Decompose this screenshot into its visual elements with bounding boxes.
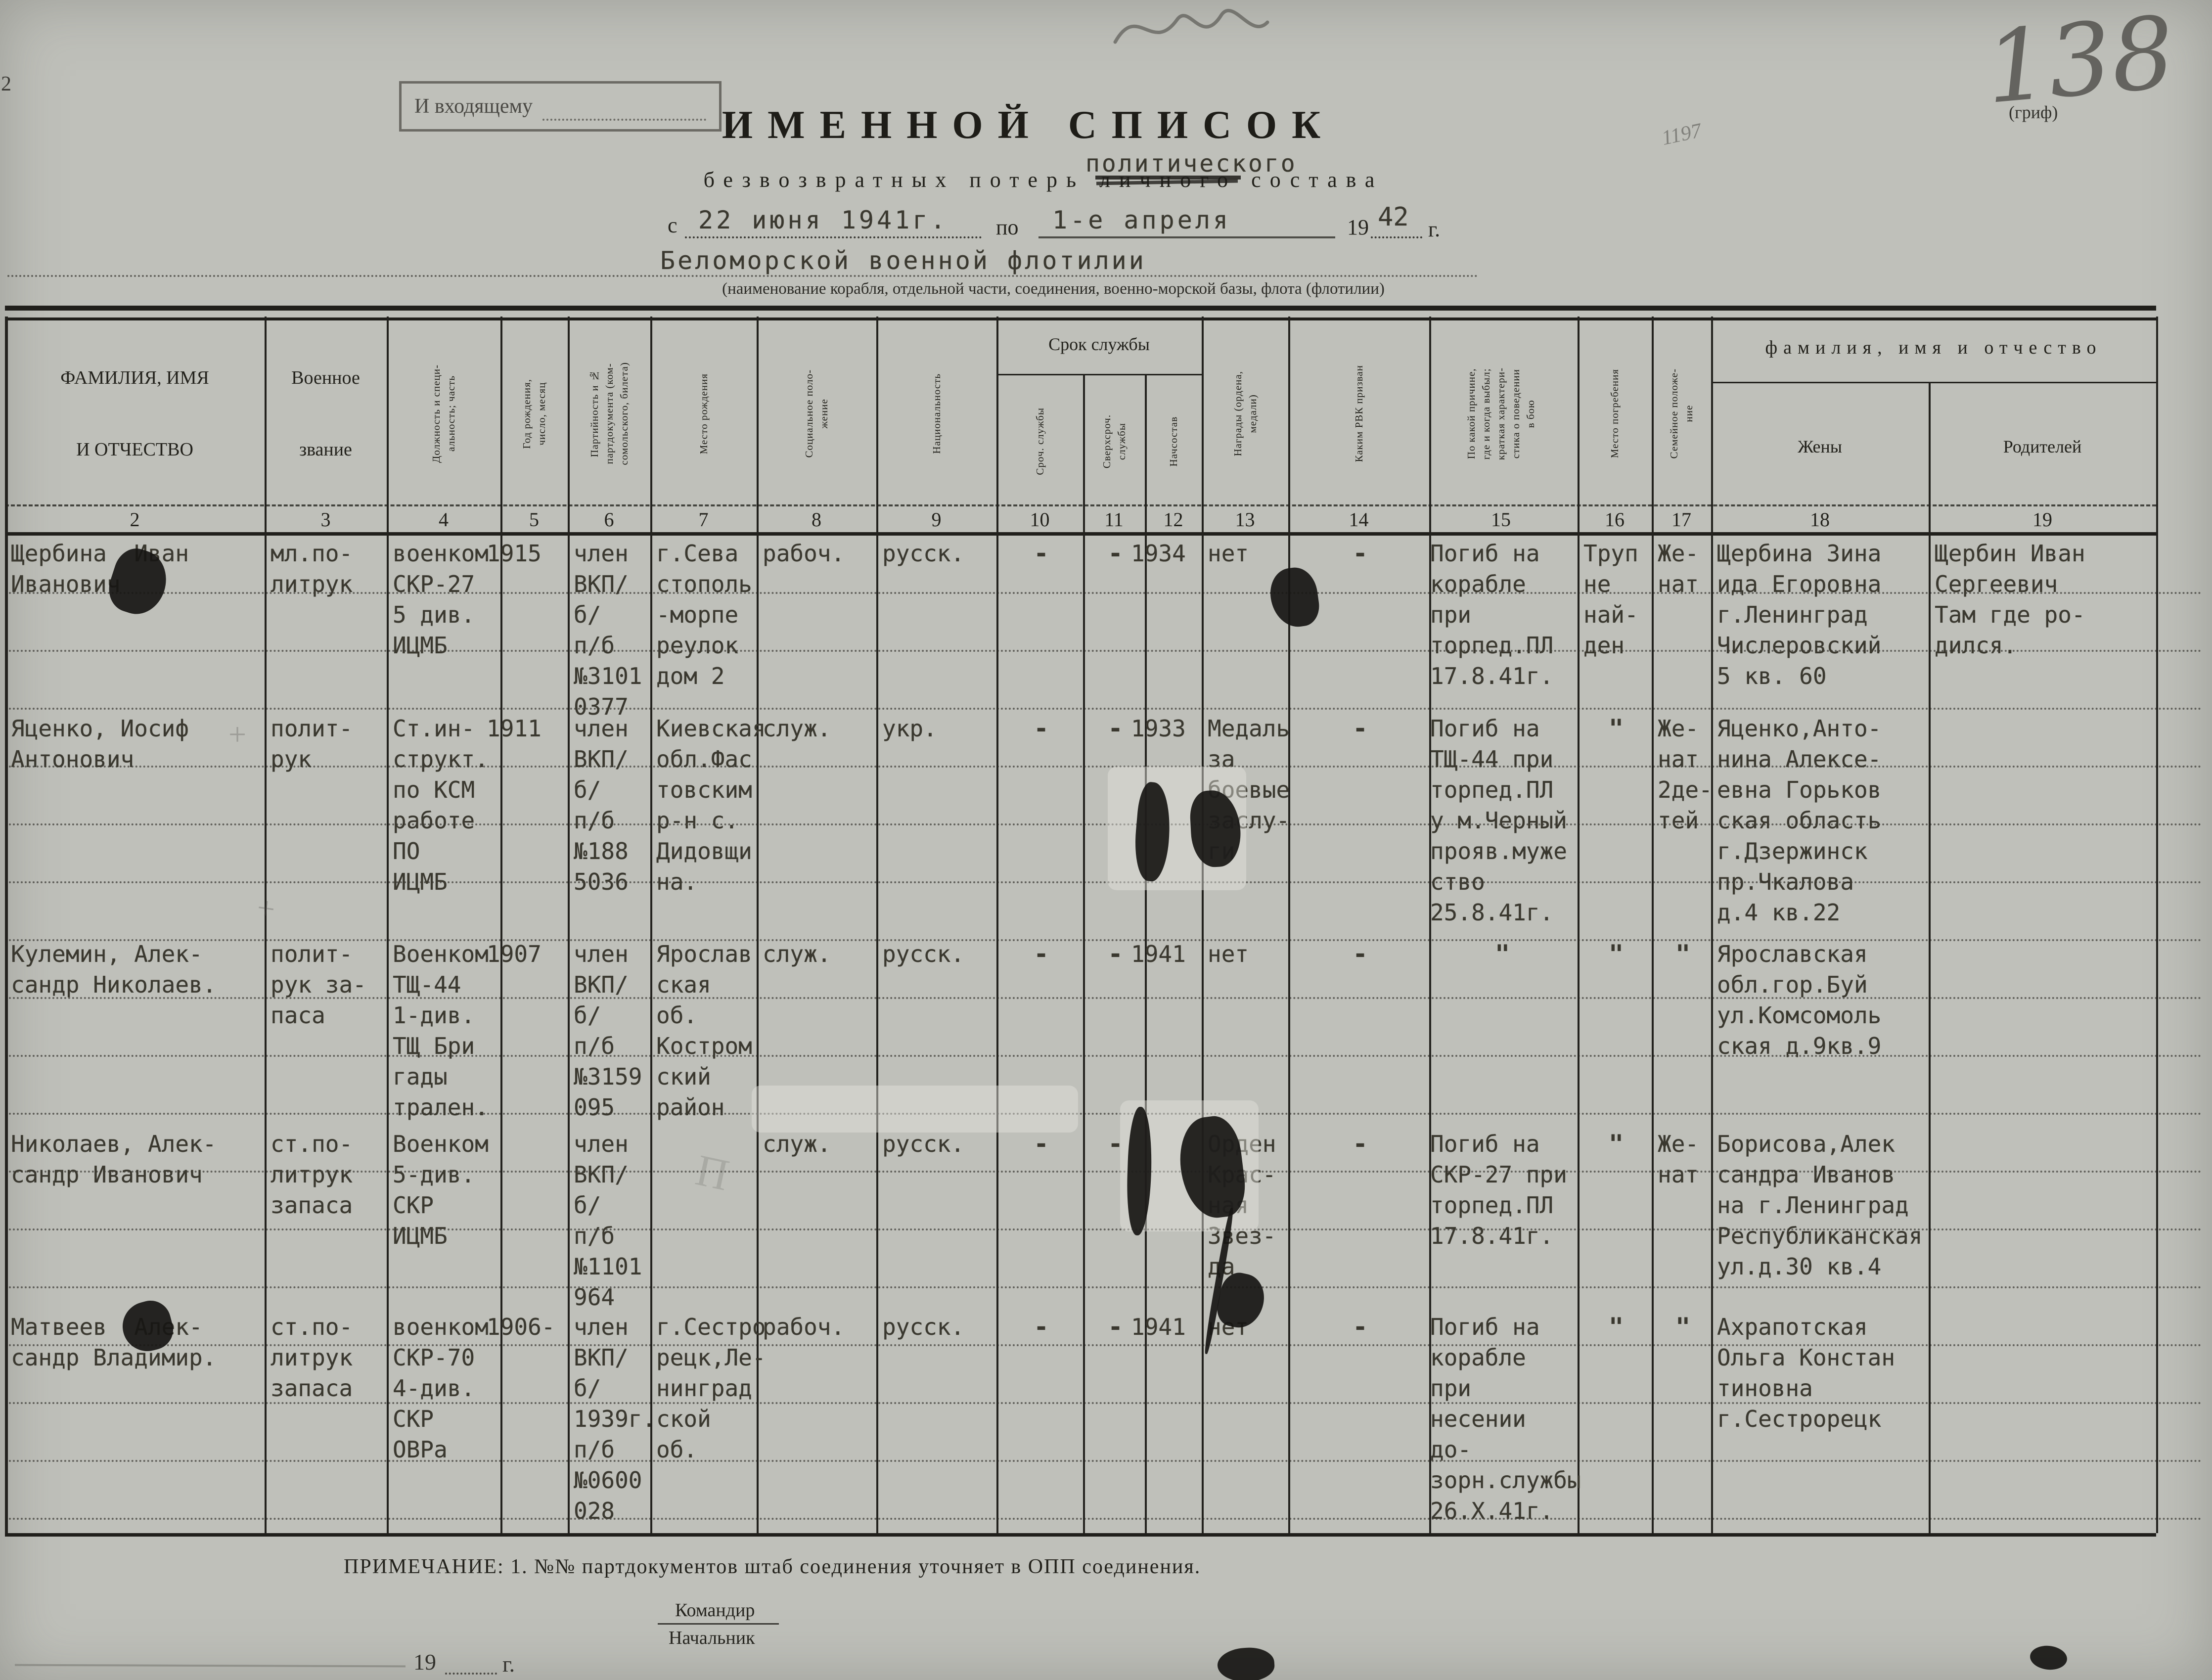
cell-r5-c18: Ахрапотская Ольга Констан тиновна г.Сест… [1717, 1312, 1926, 1434]
cell-r3-c10: - [1002, 939, 1080, 969]
column-number-16: 16 [1578, 506, 1652, 532]
pencil-mark: + [228, 716, 246, 753]
cell-r2-c5: 1911 [487, 713, 564, 744]
column-number-5: 5 [500, 506, 568, 532]
cell-r2-c3: полит- рук [271, 713, 384, 774]
cell-r3-c7: Ярослав ская об. Костром ский район [656, 939, 754, 1123]
cell-r1-c10: - [1002, 538, 1080, 569]
cell-r3-c12: 1941 [1131, 939, 1198, 969]
grid-line [1929, 382, 1931, 1533]
ruling-line [5, 1286, 2203, 1288]
cell-r2-c12: 1933 [1131, 713, 1198, 744]
cell-r5-c3: ст.по- литрук запаса [271, 1312, 384, 1404]
cell-r5-c14: - [1294, 1312, 1426, 1342]
column-header-17: Семейное положе- ние [1652, 325, 1711, 502]
column-header-label: Должность и специ- альность; часть [429, 364, 458, 463]
table-top-border [5, 306, 2156, 311]
cell-r2-c10: - [1002, 713, 1080, 744]
column-number-3: 3 [265, 506, 387, 532]
column-number-2: 2 [5, 506, 265, 532]
paper-patch [752, 1086, 1078, 1133]
group-header-family: фамилия, имя и отчество [1711, 331, 2156, 364]
column-header-2: ФАМИЛИЯ, ИМЯ И ОТЧЕСТВО [5, 325, 265, 502]
column-number-10: 10 [996, 506, 1083, 532]
ink-blot [1217, 1646, 1275, 1680]
ruling-line [5, 1113, 2203, 1115]
cell-r3-c14: - [1294, 939, 1426, 969]
column-header-label: Сверхсроч. службы [1099, 414, 1129, 468]
column-number-12: 12 [1145, 506, 1202, 532]
column-number-14: 14 [1288, 506, 1429, 532]
column-number-4: 4 [387, 506, 500, 532]
cell-r1-c5: 1915 [487, 538, 564, 569]
column-header-4: Должность и специ- альность; часть [387, 325, 500, 502]
cell-r1-c19: Щербин Иван Сергеевич Там где ро- дился. [1935, 538, 2153, 661]
cell-r3-c4: Военком ТЩ-44 1-див. ТЩ Бри гады трален. [393, 939, 497, 1123]
cell-r5-c17: " [1658, 1312, 1708, 1342]
cell-r3-c3: полит- рук за- паса [271, 939, 384, 1031]
table-bottom-border [5, 1533, 2156, 1537]
cell-r5-c8: рабоч. [763, 1312, 873, 1342]
pencil-mark: + [255, 889, 277, 928]
cell-r1-c18: Щербина Зина ида Егоровна г.Ленинград Чи… [1717, 538, 1926, 691]
cell-r1-c14: - [1294, 538, 1426, 569]
column-number-11: 11 [1083, 506, 1145, 532]
column-header-9: Национальность [876, 325, 996, 502]
cell-r1-c4: военком СКР-27 5 див. ИЦМБ [393, 538, 497, 661]
pencil-mark: П [691, 1144, 733, 1201]
cell-r1-c12: 1934 [1131, 538, 1198, 569]
cell-r5-c15: Погиб на корабле при несении до- зорн.сл… [1430, 1312, 1575, 1526]
grid-line [1083, 374, 1085, 1533]
cell-r1-c15: Погиб на корабле при торпед.ПЛ 17.8.41г. [1430, 538, 1575, 691]
document-page: 2 И входящему 138 (гриф) 1197 ИМЕННОЙ СП… [0, 0, 2212, 1680]
column-number-19: 19 [1929, 506, 2156, 532]
column-header-7: Место рождения [650, 325, 757, 502]
cell-r4-c6: член ВКП/б/ п/б №1101 964 [574, 1129, 647, 1313]
cell-r2-c18: Яценко,Анто- нина Алексе- евна Горьков с… [1717, 713, 1926, 928]
cell-r3-c18: Ярославская обл.гор.Буй ул.Комсомоль ска… [1717, 939, 1926, 1061]
cell-r3-c13: нет [1208, 939, 1285, 969]
ink-blot [1267, 565, 1322, 630]
footer-year-rule [445, 1673, 497, 1675]
cell-r3-c6: член ВКП/б/ п/б №3159 095 [574, 939, 647, 1123]
cell-r4-c17: Же- нат [1658, 1129, 1708, 1190]
column-header-label: Награды (ордена, медали) [1230, 371, 1260, 456]
cell-r4-c14: - [1294, 1129, 1426, 1159]
column-header-14: Каким РВК призван [1288, 325, 1429, 502]
cell-r1-c8: рабоч. [763, 538, 873, 569]
cell-r2-c16: " [1583, 713, 1649, 744]
column-header-label: Каким РВК призван [1352, 365, 1366, 462]
cell-r5-c12: 1941 [1131, 1312, 1198, 1342]
cell-r5-c9: русск. [882, 1312, 993, 1342]
cell-r1-c3: мл.по- литрук [271, 538, 384, 599]
footer-year-prefix: 19 [413, 1649, 436, 1675]
cell-r2-c14: - [1294, 713, 1426, 744]
column-number-7: 7 [650, 506, 757, 532]
column-number-9: 9 [876, 506, 996, 532]
cell-r3-c16: " [1583, 939, 1649, 969]
cell-r5-c6: член ВКП/б/ 1939г. п/б №0600 028 [574, 1312, 647, 1526]
cell-r4-c18: Борисова,Алек сандра Иванов на г.Ленингр… [1717, 1129, 1926, 1282]
ruling-line [5, 708, 2203, 710]
column-header-13: Награды (ордена, медали) [1202, 325, 1288, 502]
cell-r4-c8: служ. [763, 1129, 873, 1159]
column-number-6: 6 [568, 506, 650, 532]
column-number-15: 15 [1424, 506, 1578, 532]
column-header-19: Родителей [1929, 391, 2156, 502]
signature-rule [658, 1623, 779, 1625]
cell-r4-c9: русск. [882, 1129, 993, 1159]
column-number-13: 13 [1202, 506, 1288, 532]
losses-table: Срок службыфамилия, имя и отчествоФАМИЛИ… [0, 0, 2212, 1680]
cell-r4-c4: Военком 5-див. СКР ИЦМБ [393, 1129, 497, 1251]
cell-r4-c10: - [1002, 1129, 1080, 1159]
column-header-12: Начсостав [1145, 381, 1202, 502]
cell-r1-c13: нет [1208, 538, 1285, 569]
ink-blot [2029, 1644, 2069, 1672]
cell-r4-c3: ст.по- литрук запаса [271, 1129, 384, 1221]
column-header-16: Место погребения [1578, 325, 1652, 502]
ruling-line [5, 1460, 2203, 1462]
header-bottom-border [5, 532, 2156, 536]
column-header-18: Жены [1711, 391, 1929, 502]
signature-role-chief: Начальник [669, 1627, 755, 1649]
cell-r2-c6: член ВКП/б/ п/б №188 5036 [574, 713, 647, 897]
cell-r2-c15: Погиб на ТЩ-44 при торпед.ПЛ у м.Черный … [1430, 713, 1575, 928]
cell-r5-c10: - [1002, 1312, 1080, 1342]
column-header-15: По какой причине, где и когда выбыл; кра… [1424, 325, 1578, 502]
cell-r2-c9: укр. [882, 713, 993, 744]
cell-r2-c8: служ. [763, 713, 873, 744]
column-number-8: 8 [757, 506, 876, 532]
column-header-label: Партийность и № партдокумента (ком- сомо… [587, 362, 632, 465]
cell-r3-c15: " [1430, 939, 1575, 969]
cell-r3-c9: русск. [882, 939, 993, 969]
column-header-10: Сроч. службы [996, 381, 1083, 502]
column-header-label: Место погребения [1607, 369, 1622, 458]
column-header-label: Сроч. службы [1033, 408, 1047, 475]
cell-r2-c4: Ст.ин- структ. по КСМ работе ПО ИЦМБ [393, 713, 497, 897]
cell-r5-c4: военком СКР-70 4-див. СКР ОВРа [393, 1312, 497, 1465]
column-header-8: Социальное поло- жение [757, 325, 876, 502]
cell-r5-c7: г.Сестро рецк,Ле- нинград ской об. [656, 1312, 754, 1465]
cell-r5-c16: " [1583, 1312, 1649, 1342]
column-header-3: Военное звание [265, 325, 387, 502]
column-header-label: Год рождения, число, месяц [519, 379, 549, 449]
cell-r4-c2: Николаев, Алек- сандр Иванович [11, 1129, 262, 1190]
column-header-label: Семейное положе- ние [1667, 368, 1696, 458]
footnote: ПРИМЕЧАНИЕ: 1. №№ партдокументов штаб со… [344, 1555, 1201, 1579]
column-number-18: 18 [1711, 506, 1929, 532]
column-header-11: Сверхсроч. службы [1083, 381, 1145, 502]
column-header-label: Место рождения [696, 373, 711, 454]
cell-r2-c7: Киевская обл.Фас товским р-н с. Дидовщи … [656, 713, 754, 897]
table-top-border-inner [5, 318, 2156, 320]
cell-r3-c8: служ. [763, 939, 873, 969]
cell-r1-c7: г.Сева стополь -морпе реулок дом 2 [656, 538, 754, 691]
cell-r1-c9: русск. [882, 538, 993, 569]
cell-r2-c17: Же- нат 2де- тей [1658, 713, 1708, 836]
group-header-service: Срок службы [996, 328, 1202, 360]
column-header-label: Национальность [929, 373, 944, 454]
column-header-label: Начсостав [1166, 416, 1181, 467]
cell-r4-c16: " [1583, 1129, 1649, 1159]
cell-r2-c2: Яценко, Иосиф Антонович [11, 713, 262, 774]
column-header-label: Социальное поло- жение [802, 369, 831, 458]
cell-r5-c5: 1906- [487, 1312, 564, 1342]
column-header-label: По какой причине, где и когда выбыл; кра… [1464, 367, 1538, 460]
column-header-5: Год рождения, число, месяц [500, 325, 568, 502]
cell-r1-c17: Же- нат [1658, 538, 1708, 599]
cell-r3-c2: Кулемин, Алек- сандр Николаев. [11, 939, 262, 1000]
service-group-underline [996, 374, 1202, 375]
column-number-17: 17 [1652, 506, 1711, 532]
cell-r3-c17: " [1658, 939, 1708, 969]
cell-r4-c15: Погиб на СКР-27 при торпед.ПЛ 17.8.41г. [1430, 1129, 1575, 1251]
signature-role-commander: Командир [675, 1599, 755, 1621]
cell-r1-c16: Труп не най- ден [1583, 538, 1649, 661]
footer-year-suffix: г. [502, 1651, 515, 1677]
cell-r1-c6: член ВКП/б/ п/б №3101 0377 [574, 538, 647, 722]
column-header-6: Партийность и № партдокумента (ком- сомо… [568, 325, 650, 502]
family-group-underline [1711, 382, 2156, 383]
grid-line [2156, 317, 2158, 1533]
ruling-line [5, 1518, 2203, 1520]
cell-r3-c5: 1907 [487, 939, 564, 969]
